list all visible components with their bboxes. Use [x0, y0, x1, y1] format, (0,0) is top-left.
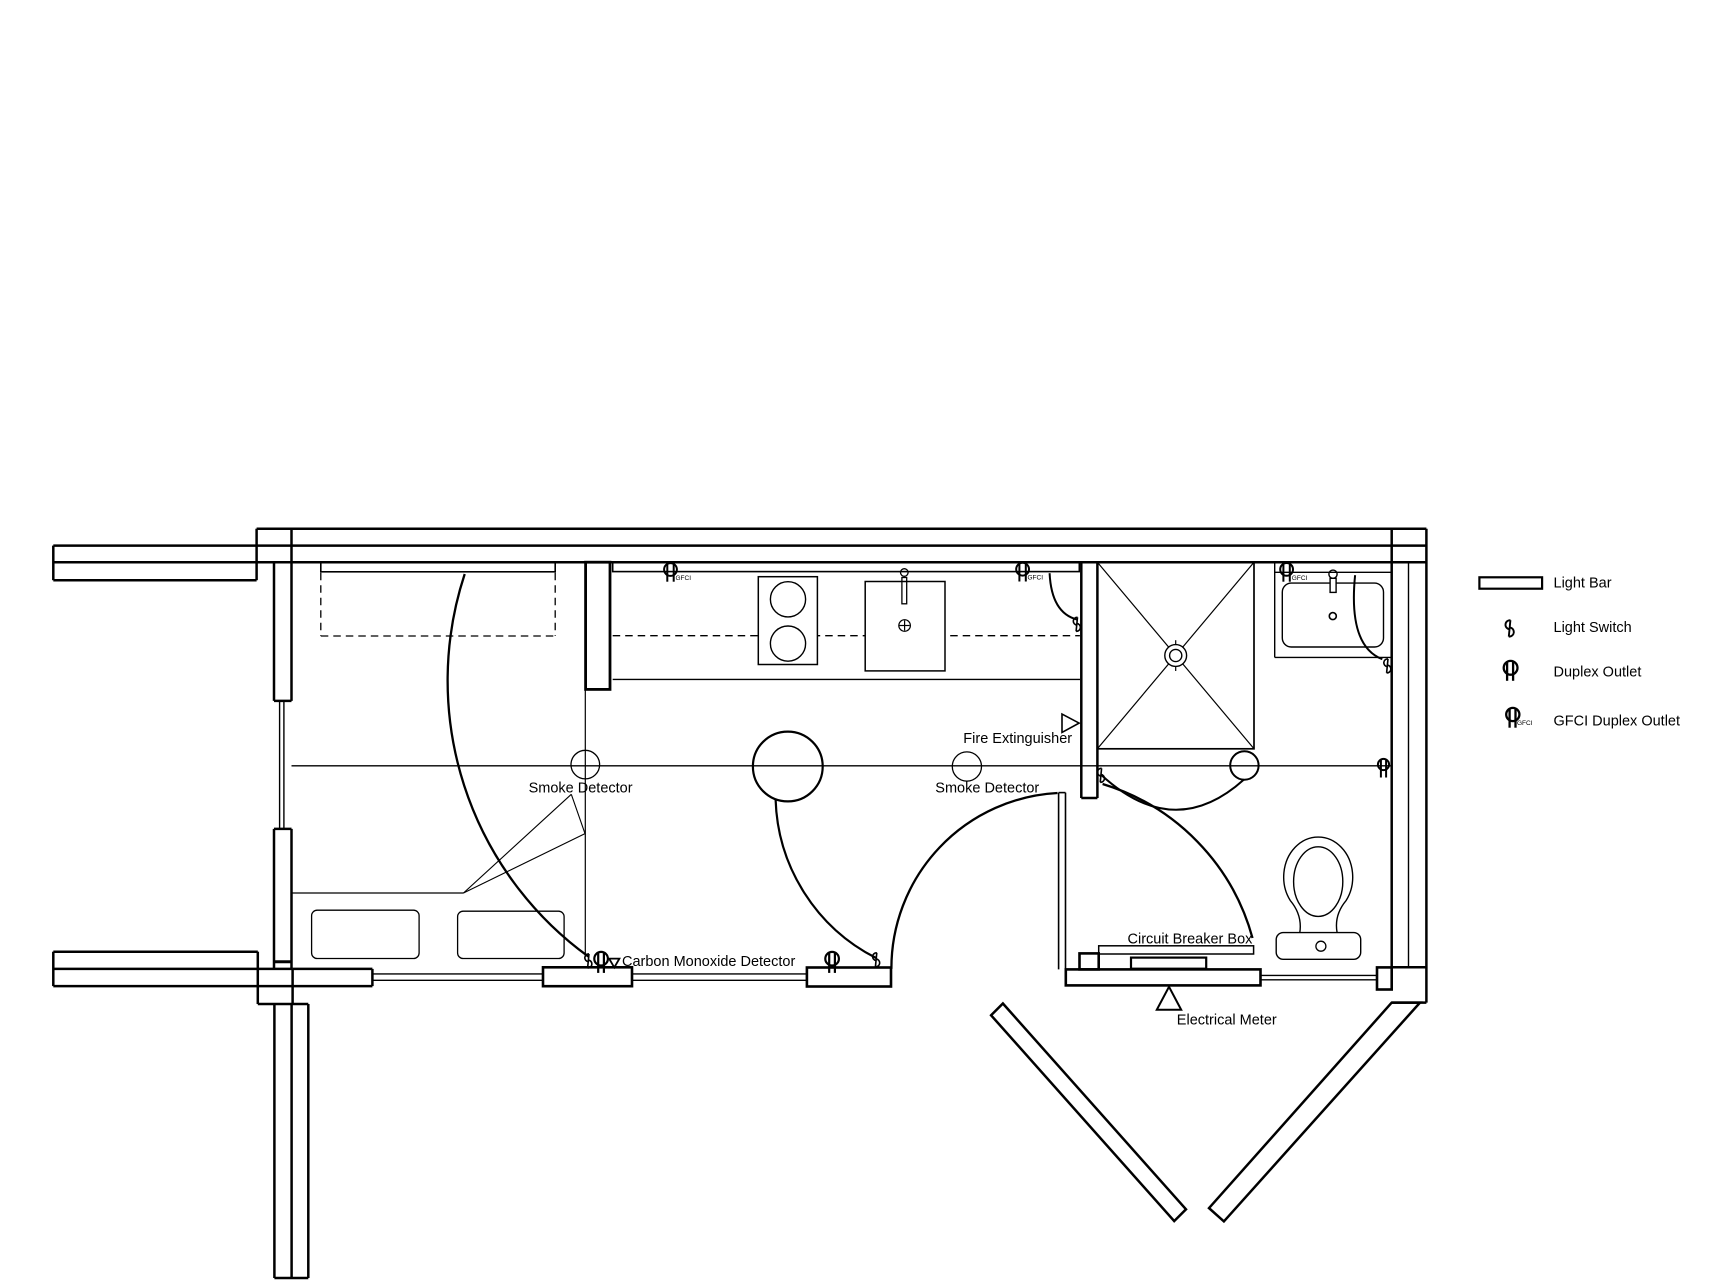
svg-text:GFCI Duplex Outlet: GFCI Duplex Outlet [1554, 714, 1681, 730]
svg-text:Fire Extinguisher: Fire Extinguisher [963, 731, 1072, 747]
svg-text:GFCI: GFCI [1028, 575, 1044, 582]
svg-text:GFCI: GFCI [676, 575, 692, 582]
svg-text:Carbon Monoxide Detector: Carbon Monoxide Detector [622, 954, 795, 970]
svg-text:GFCI: GFCI [1292, 575, 1308, 582]
svg-text:GFCI: GFCI [1517, 720, 1533, 727]
svg-text:Smoke Detector: Smoke Detector [529, 780, 633, 796]
svg-text:Circuit Breaker Box: Circuit Breaker Box [1128, 932, 1254, 948]
svg-text:Electrical Meter: Electrical Meter [1177, 1013, 1277, 1029]
svg-text:Smoke Detector: Smoke Detector [935, 780, 1039, 796]
svg-text:Light Bar: Light Bar [1554, 576, 1612, 592]
svg-text:Light Switch: Light Switch [1554, 620, 1632, 636]
svg-text:Duplex Outlet: Duplex Outlet [1554, 665, 1642, 681]
